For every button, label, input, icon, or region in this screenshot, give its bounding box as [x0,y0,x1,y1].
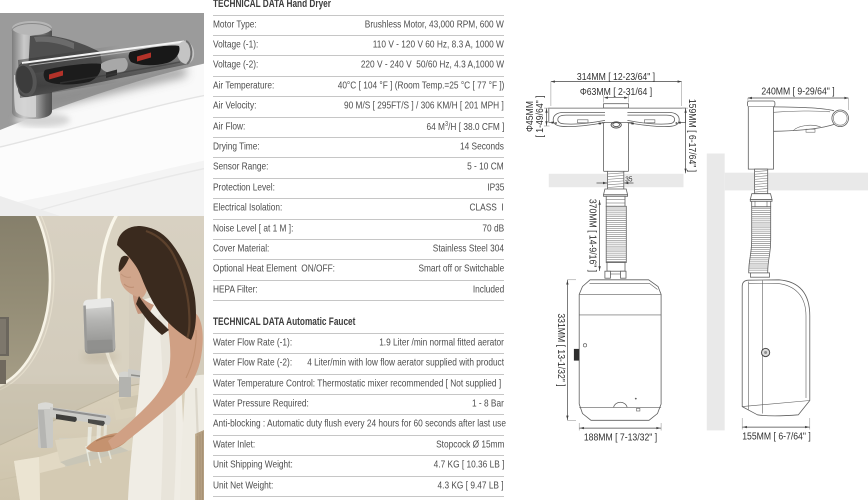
svg-text:Φ63MM [ 2-31/64 ]: Φ63MM [ 2-31/64 ] [580,86,652,98]
svg-text:159MM [ 6-17/64" ]: 159MM [ 6-17/64" ] [686,99,698,172]
svg-text:155MM [ 6-7/64" ]: 155MM [ 6-7/64" ] [742,431,811,443]
svg-text:370MM [ 14-9/16" ]: 370MM [ 14-9/16" ] [586,199,598,272]
svg-text:35: 35 [625,176,632,184]
svg-text:188MM [ 7-13/32" ]: 188MM [ 7-13/32" ] [584,432,657,444]
svg-text:314MM [ 12-23/64" ]: 314MM [ 12-23/64" ] [577,72,655,84]
svg-text:[ 1-49/64" ]: [ 1-49/64" ] [534,95,546,137]
svg-text:240MM [ 9-29/64" ]: 240MM [ 9-29/64" ] [761,86,834,98]
svg-text:331MM [ 13-1/32" ]: 331MM [ 13-1/32" ] [555,313,567,386]
